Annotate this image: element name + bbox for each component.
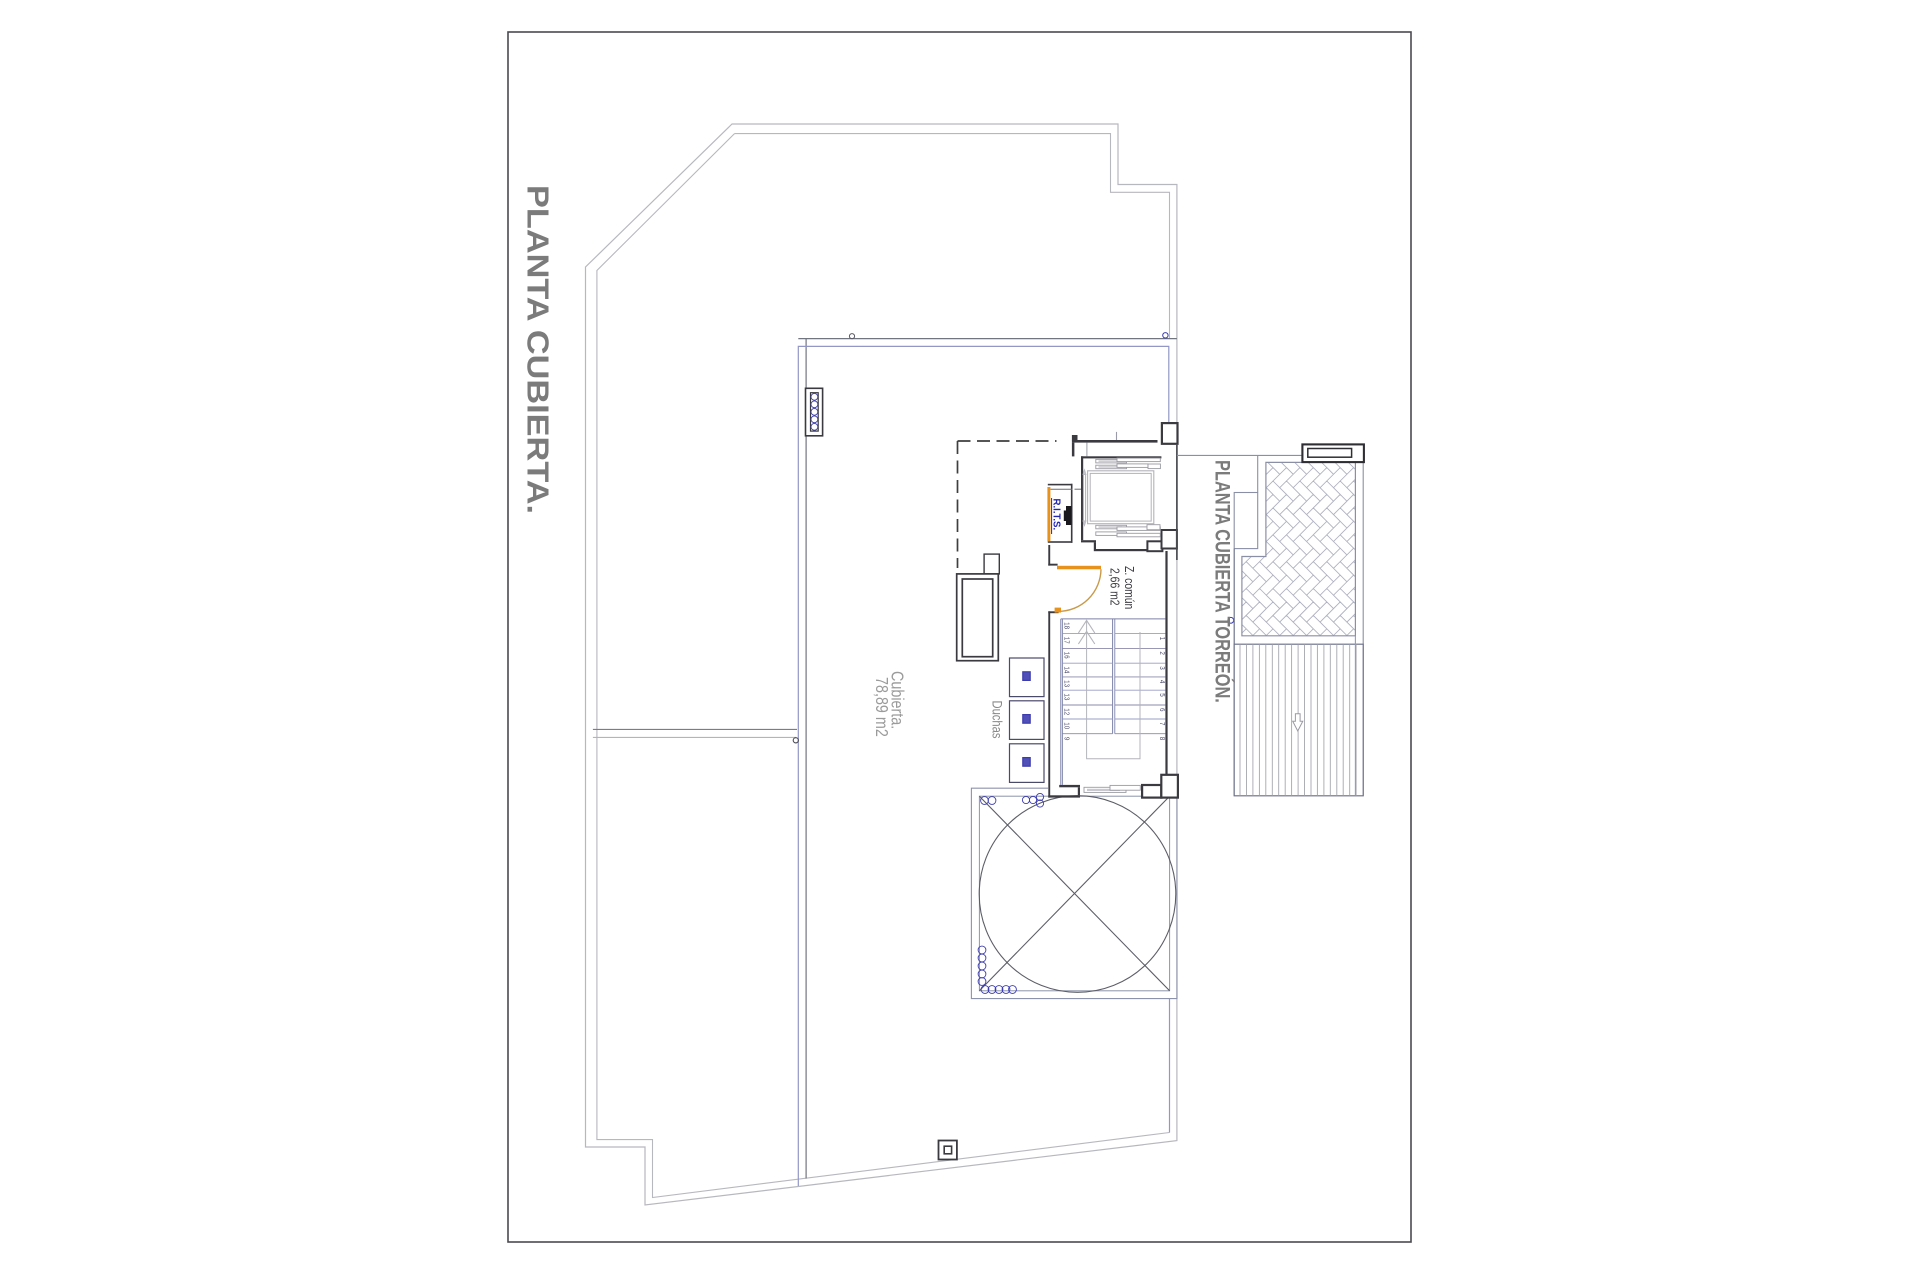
svg-text:2,66 m2: 2,66 m2 — [1107, 568, 1121, 606]
svg-text:10: 10 — [1062, 722, 1069, 729]
svg-text:3: 3 — [1158, 666, 1165, 670]
svg-text:6: 6 — [1158, 708, 1165, 712]
svg-text:5: 5 — [1158, 693, 1165, 697]
svg-text:Z. común: Z. común — [1122, 566, 1136, 609]
svg-text:Duchas: Duchas — [989, 701, 1004, 739]
svg-text:18: 18 — [1062, 622, 1069, 629]
svg-text:14: 14 — [1062, 666, 1069, 673]
svg-text:16: 16 — [1062, 652, 1069, 659]
svg-text:8: 8 — [1158, 737, 1165, 741]
svg-text:17: 17 — [1062, 637, 1069, 644]
svg-text:13: 13 — [1062, 693, 1069, 700]
svg-text:78,89 m2: 78,89 m2 — [871, 677, 890, 737]
svg-text:1: 1 — [1158, 637, 1165, 641]
svg-text:2: 2 — [1158, 651, 1165, 655]
svg-text:4: 4 — [1158, 680, 1165, 684]
svg-text:9: 9 — [1062, 737, 1069, 741]
svg-text:7: 7 — [1158, 722, 1165, 726]
svg-text:13: 13 — [1062, 680, 1069, 687]
svg-text:PLANTA CUBIERTA.: PLANTA CUBIERTA. — [521, 185, 556, 514]
svg-text:PLANTA CUBIERTA TORREÓN.: PLANTA CUBIERTA TORREÓN. — [1210, 460, 1235, 703]
svg-text:12: 12 — [1062, 708, 1069, 715]
